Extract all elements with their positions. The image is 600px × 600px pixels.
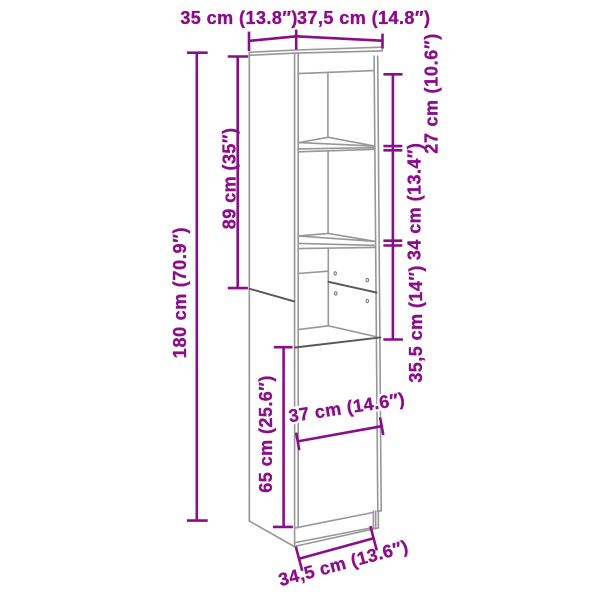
svg-text:89 cm (35″): 89 cm (35″) — [220, 128, 240, 230]
svg-text:27 cm (10.6″): 27 cm (10.6″) — [422, 33, 442, 154]
svg-text:34 cm (13.4″): 34 cm (13.4″) — [405, 143, 425, 261]
svg-text:65 cm (25.6″): 65 cm (25.6″) — [256, 375, 276, 493]
svg-text:37,5 cm (14.8″): 37,5 cm (14.8″) — [297, 8, 430, 28]
svg-text:35 cm (13.8″): 35 cm (13.8″) — [180, 8, 298, 28]
svg-text:180 cm (70.9″): 180 cm (70.9″) — [170, 227, 190, 359]
svg-text:35,5 cm (14″): 35,5 cm (14″) — [406, 265, 426, 383]
